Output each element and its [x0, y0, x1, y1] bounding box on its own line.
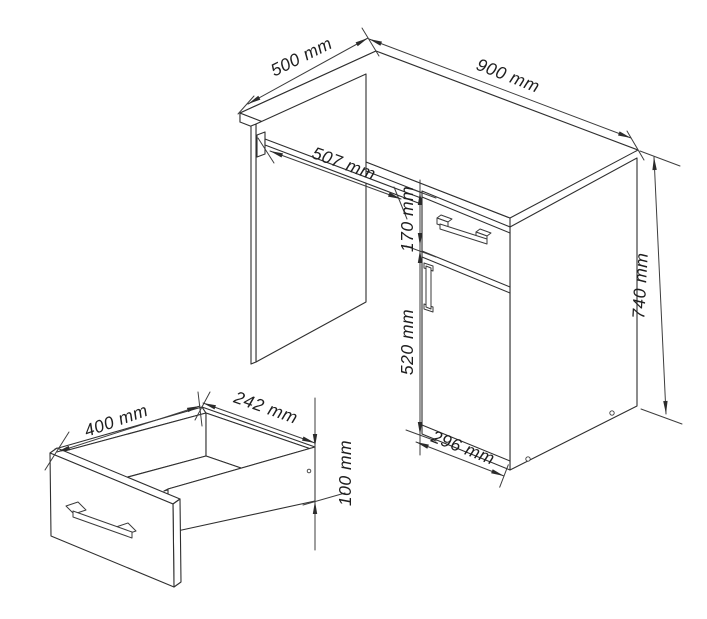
screw-cap	[610, 411, 614, 415]
dim-drawer-front-height-label: 170 mm	[397, 186, 417, 252]
technical-drawing-canvas: 500 mm 900 mm 507 mm	[0, 0, 707, 619]
desk-left-leg-panel	[256, 74, 366, 362]
dim-desk-width-label: 900 mm	[474, 54, 543, 96]
technical-drawing-page: 500 mm 900 mm 507 mm	[0, 0, 707, 619]
dim-door-height-label: 520 mm	[397, 309, 417, 375]
dim-drawer-height-label: 100 mm	[335, 440, 355, 506]
drawer-detail-drawing: 400 mm 242 mm 100 mm	[45, 387, 355, 587]
desk-left-leg-front-edge	[251, 124, 256, 364]
desk-drawing: 500 mm 900 mm 507 mm	[238, 28, 682, 487]
keyboard-tray-bracket	[257, 132, 265, 157]
screw-cap	[526, 457, 530, 461]
dim-overall-height-label: 740 mm	[628, 252, 651, 319]
dim-desk-depth-label: 500 mm	[267, 33, 335, 80]
screw-cap	[307, 469, 311, 473]
